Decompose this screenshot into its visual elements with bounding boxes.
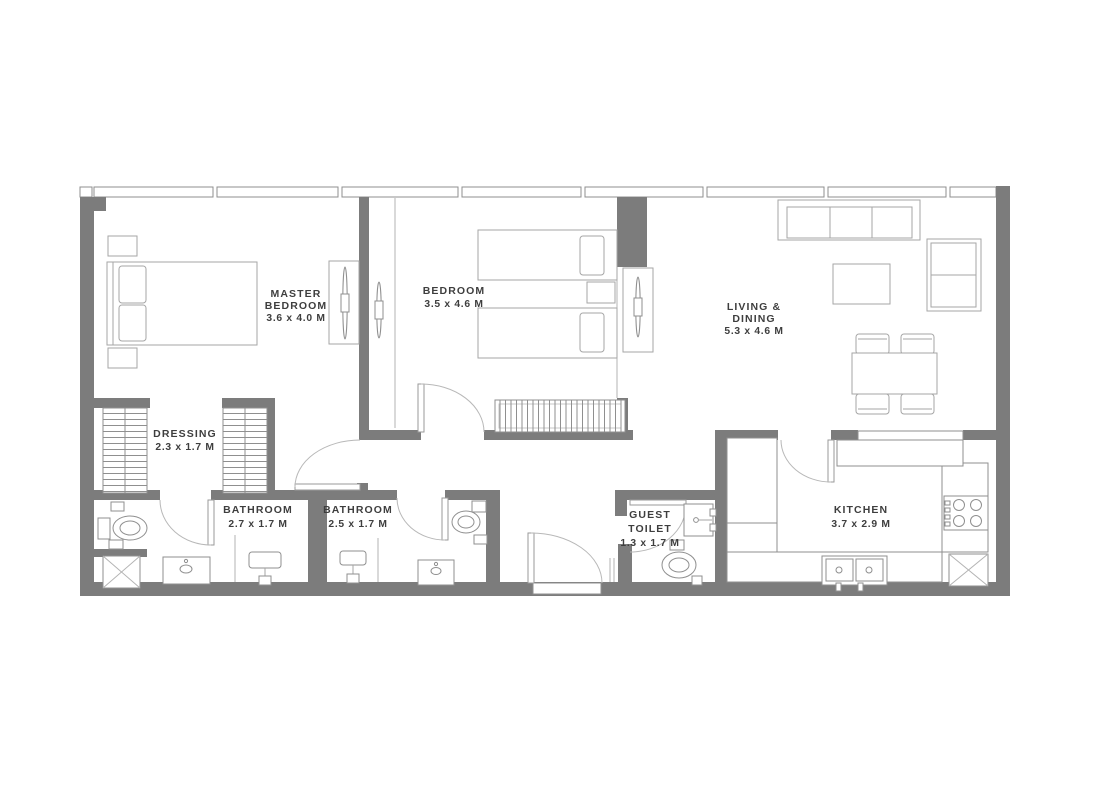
room-dims: 5.3 x 4.6 M xyxy=(724,326,783,337)
sink-icon xyxy=(163,557,210,584)
sink-icon xyxy=(418,560,454,585)
room-master-bedroom: MASTER BEDROOM 3.6 x 4.0 M xyxy=(107,236,383,368)
single-bed-icon xyxy=(478,230,617,280)
room-label: DINING xyxy=(732,313,775,325)
shaft-x-icon xyxy=(103,556,140,588)
room-bathroom-shared: BATHROOM 2.5 x 1.7 M xyxy=(323,501,487,585)
closet-icon xyxy=(495,400,625,432)
wardrobe-icon xyxy=(375,282,383,338)
room-label: TOILET xyxy=(628,523,672,535)
stove-icon xyxy=(944,496,988,530)
entry-door xyxy=(528,533,602,594)
kitchen-hatch-window xyxy=(858,431,963,440)
nightstand-icon xyxy=(108,348,137,368)
closet-icon xyxy=(223,408,267,493)
room-label: BEDROOM xyxy=(265,300,328,312)
floor-plan-page: MASTER BEDROOM 3.6 x 4.0 M BEDROOM 3.5 x… xyxy=(0,0,1100,785)
room-dims: 2.7 x 1.7 M xyxy=(228,519,287,530)
room-label: GUEST xyxy=(629,509,671,521)
room-label: MASTER xyxy=(271,288,322,300)
room-dims: 1.3 x 1.7 M xyxy=(620,538,679,549)
room-guest-toilet: GUEST TOILET 1.3 x 1.7 M xyxy=(620,504,716,585)
shower-icon xyxy=(340,551,366,583)
bedroom-door xyxy=(418,384,484,432)
bathroom-master-door xyxy=(160,500,214,545)
room-label: BATHROOM xyxy=(323,504,393,516)
room-label: BATHROOM xyxy=(223,504,293,516)
room-kitchen: KITCHEN 3.7 x 2.9 M xyxy=(727,438,988,591)
room-dims: 3.7 x 2.9 M xyxy=(831,519,890,530)
armchair-icon xyxy=(927,239,981,311)
room-label: DRESSING xyxy=(153,428,217,440)
room-dims: 3.5 x 4.6 M xyxy=(424,299,483,310)
room-dims: 2.5 x 1.7 M xyxy=(328,519,387,530)
nightstand-icon xyxy=(108,236,137,256)
room-dressing: DRESSING 2.3 x 1.7 M xyxy=(103,408,267,493)
sofa-icon xyxy=(778,200,920,240)
dining-table-icon xyxy=(852,334,937,414)
toilet-icon xyxy=(98,502,147,549)
single-bed-icon xyxy=(478,308,617,358)
coffee-table-icon xyxy=(833,264,890,304)
bathroom-shared-door xyxy=(397,498,448,540)
room-living-dining: LIVING & DINING 5.3 x 4.6 M xyxy=(724,200,981,414)
double-bed-icon xyxy=(107,262,257,345)
shaft-x-icon xyxy=(949,554,988,586)
sink-icon xyxy=(684,504,716,536)
closet-icon xyxy=(103,408,147,493)
wardrobe-icon xyxy=(623,268,653,352)
nightstand-icon xyxy=(587,282,615,303)
room-dims: 2.3 x 1.7 M xyxy=(155,442,214,453)
room-dims: 3.6 x 4.0 M xyxy=(266,313,325,324)
room-label: LIVING & xyxy=(727,301,781,313)
master-bedroom-door xyxy=(295,440,360,490)
wardrobe-icon xyxy=(329,261,359,344)
floor-plan: MASTER BEDROOM 3.6 x 4.0 M BEDROOM 3.5 x… xyxy=(0,0,1100,785)
kitchen-door xyxy=(781,440,834,482)
window-band xyxy=(80,187,996,197)
room-label: KITCHEN xyxy=(834,504,888,516)
shower-icon xyxy=(249,552,281,585)
room-label: BEDROOM xyxy=(423,285,486,297)
room-bathroom-master: BATHROOM 2.7 x 1.7 M xyxy=(98,502,293,588)
toilet-icon xyxy=(452,501,487,544)
